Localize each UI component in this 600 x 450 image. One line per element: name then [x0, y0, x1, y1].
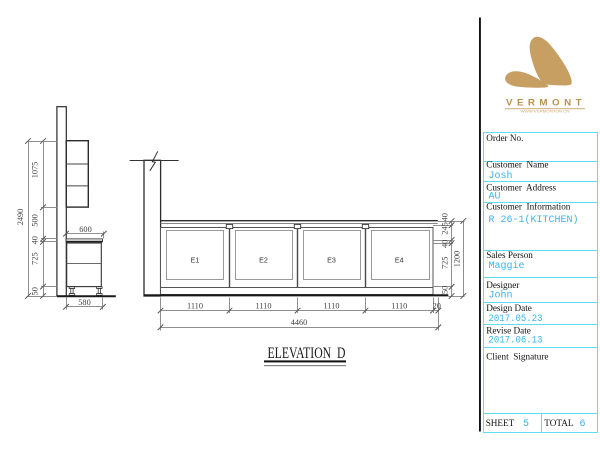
svg-text:1200: 1200 — [452, 251, 461, 268]
svg-text:1110: 1110 — [391, 301, 407, 310]
svg-text:SHEET: SHEET — [486, 418, 515, 428]
svg-text:1110: 1110 — [256, 301, 272, 310]
svg-text:2017.05.23: 2017.05.23 — [489, 314, 543, 325]
svg-text:600: 600 — [79, 225, 91, 234]
svg-text:VERMONT: VERMONT — [506, 98, 586, 108]
svg-text:Customer Name: Customer Name — [486, 160, 548, 170]
svg-text:245: 245 — [440, 222, 449, 234]
svg-text:725: 725 — [31, 252, 40, 264]
svg-text:R 26-1(KITCHEN): R 26-1(KITCHEN) — [489, 214, 579, 226]
svg-text:1110: 1110 — [324, 301, 340, 310]
svg-text:5: 5 — [523, 419, 529, 430]
svg-text:50: 50 — [440, 286, 449, 294]
svg-text:E4: E4 — [395, 256, 404, 265]
svg-text:500: 500 — [31, 214, 40, 226]
svg-text:580: 580 — [78, 298, 90, 307]
svg-text:40: 40 — [440, 240, 449, 248]
svg-text:ELEVATION D: ELEVATION D — [268, 345, 346, 362]
svg-text:4460: 4460 — [291, 318, 308, 327]
svg-text:40: 40 — [31, 236, 40, 244]
svg-text:WWW.VERMONTON.CN: WWW.VERMONTON.CN — [521, 110, 570, 114]
svg-text:2017.06.13: 2017.06.13 — [489, 336, 543, 347]
svg-text:Designer: Designer — [486, 280, 519, 290]
svg-text:2490: 2490 — [16, 209, 25, 226]
svg-text:Design Date: Design Date — [486, 303, 532, 313]
svg-text:TOTAL: TOTAL — [544, 418, 574, 428]
svg-text:725: 725 — [440, 257, 449, 269]
svg-text:Customer Information: Customer Information — [486, 201, 571, 211]
svg-text:Revise Date: Revise Date — [486, 326, 531, 336]
svg-text:John: John — [489, 289, 513, 301]
svg-text:Sales Person: Sales Person — [486, 250, 533, 260]
svg-text:40: 40 — [440, 213, 449, 221]
svg-text:E1: E1 — [191, 256, 200, 265]
svg-text:1110: 1110 — [187, 301, 203, 310]
svg-text:Order No.: Order No. — [486, 133, 523, 143]
svg-text:6: 6 — [580, 419, 586, 430]
svg-text:Maggie: Maggie — [489, 260, 525, 272]
svg-text:E2: E2 — [259, 256, 268, 265]
svg-text:1075: 1075 — [31, 162, 40, 179]
svg-text:20: 20 — [433, 301, 441, 310]
svg-text:Josh: Josh — [489, 170, 513, 182]
svg-text:Client Signature: Client Signature — [486, 351, 548, 361]
svg-text:E3: E3 — [327, 256, 336, 265]
svg-text:50: 50 — [31, 287, 40, 295]
